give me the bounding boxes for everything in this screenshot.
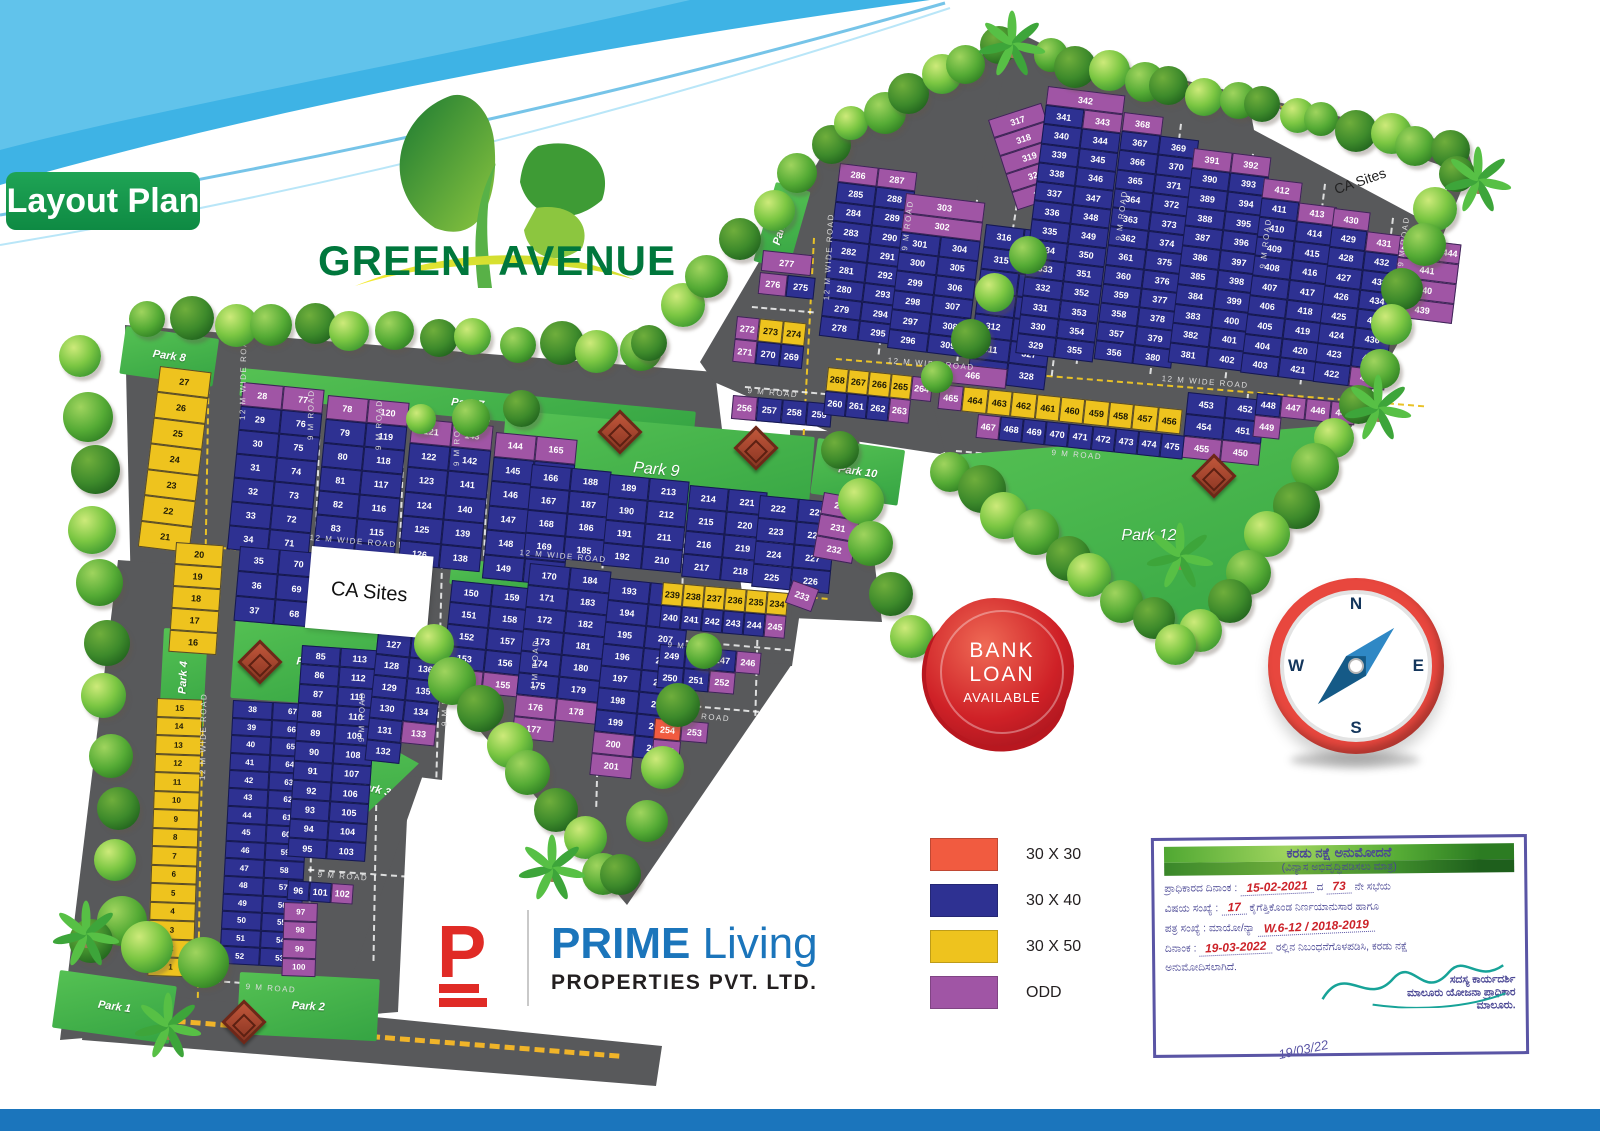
plot-268: 268 [825,367,849,393]
legend-label: 30 X 30 [1026,846,1081,864]
plot-block: 121143122142123141124140125139126138 [398,418,494,572]
compass-icon: N E S W [1268,578,1444,754]
plot-275: 275 [786,275,816,300]
plot-263: 263 [887,398,911,424]
tree-icon [375,311,414,350]
plot-469: 469 [1021,419,1046,445]
plot-272: 272 [735,316,761,341]
plot-row: 97 [283,902,318,922]
tree-icon [975,273,1014,312]
plot-39: 39 [231,718,272,738]
bank-loan-seal: BANK LOAN AVAILABLE [920,588,1080,758]
tree-icon [121,921,173,973]
plot-row: 9 [152,809,199,829]
plot-271: 271 [732,339,758,364]
compass-shadow [1290,752,1420,768]
tree-icon [641,746,684,789]
plot-37: 37 [233,596,275,624]
plot-210: 210 [641,547,683,574]
palm-tree-icon [1458,156,1498,196]
plot-row: 100 [281,957,316,977]
tree-icon [84,620,130,666]
plot-5: 5 [150,883,197,903]
tree-icon [626,800,668,842]
plot-48: 48 [223,876,264,896]
plot-132: 132 [365,739,402,764]
plot-238: 238 [682,584,705,609]
plot-460: 460 [1059,397,1086,424]
plot-457: 457 [1132,404,1159,431]
plot-38: 38 [232,700,273,720]
tree-icon [1395,126,1435,166]
stamp-date-2: 19-03-2022 [1199,938,1273,956]
brand-word-green: GREEN [318,237,472,285]
tree-icon [921,361,953,393]
developer-name-light: Living [690,919,817,968]
tree-icon [505,750,550,795]
legend-item-1: 30 X 40 [930,884,1081,917]
plot-58: 58 [264,860,305,880]
compass-north-label: N [1350,594,1362,614]
tree-icon [719,218,761,260]
plot-row: 14 [156,716,203,736]
plot-row: 15 [156,698,203,718]
plot-240: 240 [659,605,682,630]
plot-36: 36 [236,571,278,599]
plot-242: 242 [701,609,724,634]
tree-icon [848,521,893,566]
page-title: Layout Plan [6,172,200,230]
tree-icon [170,296,214,340]
tree-icon [500,327,536,363]
legend-label: 30 X 50 [1026,938,1081,956]
tree-icon [63,392,113,442]
legend-swatch [930,930,998,963]
plot-95: 95 [287,837,327,859]
stamp-meeting-no: 73 [1326,878,1352,894]
plot-46: 46 [225,841,266,861]
palm-tree-icon [532,844,572,884]
plot-273: 273 [758,318,784,343]
plot-225: 225 [751,564,792,591]
plot-row: 99 [282,939,317,959]
plot-244: 244 [743,612,766,637]
stamp-letter-no: W.6-12 / 2018-2019 [1257,917,1375,937]
plot-276: 276 [758,272,788,297]
plot-96: 96 [287,880,310,901]
legend-item-0: 30 X 30 [930,838,1081,871]
plot-42: 42 [228,770,269,790]
plot-473: 473 [1113,428,1138,454]
tree-icon [1185,78,1223,116]
plot-13: 13 [155,735,202,755]
plot-51: 51 [220,928,261,948]
legend-swatch [930,884,998,917]
plot-274: 274 [781,321,807,346]
plot-11: 11 [154,772,201,792]
ca-sites-box: CA Sites [305,546,434,638]
signature-icon [1317,955,1508,1009]
plot-252: 252 [708,670,736,694]
plot-138: 138 [439,544,482,572]
compass-south-label: S [1350,718,1361,738]
plot-9: 9 [152,809,199,829]
approval-stamp: ಕರಡು ನಕ್ಷೆ ಅನುಮೋದನೆ (ವಿನ್ಯಾಸ ಅಭಿವೃದ್ಧಿಪಡ… [1151,834,1529,1058]
plot-448: 448 [1255,393,1282,417]
plot-178: 178 [555,699,598,725]
tree-icon [686,633,722,669]
stamp-line-4: ದಿನಾಂಕ : 19-03-2022 ರಲ್ಲಿನ ನಿಬಂಧನೆಗೊಳಪಡಿ… [1165,937,1515,956]
plot-size-legend: 30 X 3030 X 4030 X 50ODD [930,838,1081,1022]
plot-262: 262 [866,395,890,421]
tree-icon [250,304,292,346]
plot-41: 41 [229,753,270,773]
plot-474: 474 [1136,431,1161,457]
park-label: Park 1 [97,999,131,1015]
plot-256: 256 [731,395,758,421]
seal-line3: AVAILABLE [963,690,1040,705]
plot-260: 260 [823,391,847,417]
plot-47: 47 [224,858,265,878]
tree-icon [656,683,700,727]
plot-row: 11 [154,772,201,792]
plot-16: 16 [168,630,217,655]
tree-icon [685,255,728,298]
tree-icon [834,106,868,140]
tree-icon [1155,624,1196,665]
layout-plan-poster: Layout Plan GREEN AVENUE Park 1Park 2Par… [0,0,1600,1131]
plot-15: 15 [156,698,203,718]
plot-row: 10 [153,790,200,810]
tree-icon [81,673,126,718]
tree-icon [178,937,229,988]
tree-icon [1149,66,1188,105]
plot-245: 245 [764,614,787,639]
legend-item-3: ODD [930,976,1081,1009]
tree-icon [76,559,123,606]
plot-239: 239 [661,582,684,607]
plot-6: 6 [151,864,198,884]
plot-block: 2019181716 [168,542,224,655]
plot-35: 35 [238,546,280,574]
plot-449: 449 [1252,415,1281,440]
palm-tree-icon [1358,384,1398,424]
plot-102: 102 [330,883,353,904]
plot-464: 464 [962,387,989,414]
plot-241: 241 [680,607,703,632]
plot-block: 189213190212191211192210 [601,474,689,573]
plot-456: 456 [1156,407,1183,434]
plot-470: 470 [1044,421,1069,447]
plot-row: 5 [150,883,197,903]
tree-icon [89,734,133,778]
plot-block: 979899100 [281,902,318,977]
plot-block: 272273274271270269 [732,316,806,369]
plot-235: 235 [745,589,768,614]
road-label: 12 M WIDE ROAD [198,693,209,780]
legend-item-2: 30 X 50 [930,930,1081,963]
plot-row: 13 [155,735,202,755]
tree-icon [838,478,884,524]
plot-14: 14 [156,716,203,736]
tree-icon [1371,304,1412,345]
plot-43: 43 [227,788,268,808]
stamp-subtitle: (ವಿನ್ಯಾಸ ಅಭಿವೃದ್ಧಿಪಡಿಸಲು ಮಾತ್ರ) [1164,859,1514,876]
road-label: 9 M ROAD [357,691,367,742]
plot-40: 40 [230,735,271,755]
plot-472: 472 [1090,426,1115,452]
plot-107: 107 [331,763,371,785]
plot-101: 101 [309,882,332,903]
legend-label: 30 X 40 [1026,892,1081,910]
plot-row: 12 [154,753,201,773]
bottom-accent-bar [0,1109,1600,1131]
plot-99: 99 [282,939,317,959]
tree-icon [575,330,618,373]
plot-row: 98 [283,920,318,940]
developer-logo: P PRIME Living PROPERTIES PVT. LTD. [437,903,818,1013]
tree-icon [94,839,136,881]
plot-12: 12 [154,753,201,773]
plot-266: 266 [868,371,892,397]
plot-50: 50 [221,911,262,931]
road-label: 9 M ROAD [530,639,540,690]
plot-458: 458 [1107,402,1134,429]
tree-icon [452,399,490,437]
developer-name-bold: PRIME [551,919,690,968]
ca-sites-label: CA Sites [330,577,408,607]
plot-45: 45 [226,823,267,843]
plot-row: 6 [151,864,198,884]
tree-icon [1403,223,1446,266]
plot-471: 471 [1067,424,1092,450]
tree-icon [503,390,540,427]
stamp-line-1: ಪ್ರಾಧಿಕಾರದ ದಿನಾಂಕ : 15-02-2021 ದ 73 ನೇ ಸ… [1164,877,1514,896]
tree-icon [71,445,120,494]
plot-467: 467 [975,414,1000,440]
stamp-subject-no: 17 [1221,900,1247,916]
stamp-date-1: 15-02-2021 [1240,878,1314,896]
plot-103: 103 [326,840,366,862]
plot-270: 270 [755,341,781,366]
seal-line2: LOAN [969,663,1034,687]
plot-201: 201 [589,753,633,779]
stamp-line-3: ಪತ್ರ ಸಂಖ್ಯೆ : ಮಾಯೋ/ನ್ಯಾ W.6-12 / 2018-20… [1165,917,1515,936]
plot-328: 328 [1006,363,1047,390]
tree-icon [754,190,795,231]
tree-icon [777,153,817,193]
road-label: 9 M ROAD [306,389,316,440]
brand-logo: GREEN AVENUE [300,78,680,303]
road-label: 9 M ROAD [374,399,384,450]
plot-269: 269 [779,344,805,369]
plot-106: 106 [330,782,370,804]
plot-459: 459 [1083,399,1110,426]
plot-234: 234 [766,591,789,616]
tree-icon [406,404,436,434]
plot-10: 10 [153,790,200,810]
park-label: Park 4 [177,661,191,695]
plot-133: 133 [401,721,437,746]
palm-tree-icon [992,20,1032,60]
stamp-line-2: ವಿಷಯ ಸಂಖ್ಯೆ : 17 ಕೈಗೆತ್ತಿಕೊಂಡ ನಿರ್ಣಯಾನುಸ… [1165,897,1515,916]
plot-261: 261 [844,393,868,419]
palm-tree-icon [1160,532,1200,572]
plot-463: 463 [986,389,1013,416]
plot-258: 258 [781,399,808,425]
prime-monogram-icon: P [437,909,511,1007]
plot-149: 149 [482,554,525,582]
plot-row: 7 [151,846,198,866]
plot-49: 49 [222,893,263,913]
plot-8: 8 [152,827,199,847]
tree-icon [869,572,913,616]
plot-468: 468 [998,416,1023,442]
palm-tree-icon [148,1002,188,1042]
plot-44: 44 [227,805,268,825]
plot-267: 267 [847,369,871,395]
seal-line1: BANK [969,639,1034,663]
plot-236: 236 [724,587,747,612]
tree-icon [821,431,859,469]
plot-475: 475 [1159,433,1184,459]
tree-icon [1244,86,1280,122]
tree-icon [600,854,641,895]
tree-icon [1304,102,1338,136]
park-label: Park 2 [291,1000,325,1014]
plot-217: 217 [681,554,722,581]
plot-257: 257 [756,397,783,423]
plot-462: 462 [1010,392,1037,419]
tree-icon [1009,236,1047,274]
plot-row: 4 [149,901,196,921]
plot-237: 237 [703,586,726,611]
plot-192: 192 [601,543,643,570]
compass-west-label: W [1288,656,1304,676]
tree-icon [129,301,165,337]
tree-icon [59,335,101,377]
plot-block: 166188167187168186169185 [523,464,611,563]
plot-447: 447 [1280,396,1307,420]
plot-7: 7 [151,846,198,866]
tree-icon [68,506,116,554]
plot-row: 8 [152,827,199,847]
tree-icon [631,325,667,361]
plot-243: 243 [722,610,745,635]
brand-word-avenue: AVENUE [498,237,676,285]
legend-swatch [930,976,998,1009]
tree-icon [420,319,458,357]
plot-100: 100 [281,957,316,977]
plot-4: 4 [149,901,196,921]
legend-label: ODD [1026,984,1062,1002]
park-label: Park 8 [152,348,186,364]
plot-265: 265 [889,374,913,400]
palm-tree-icon [66,910,106,950]
legend-swatch [930,838,998,871]
plot-461: 461 [1034,394,1061,421]
compass-east-label: E [1413,656,1424,676]
logo-divider [527,910,529,1006]
plot-98: 98 [283,920,318,940]
tree-icon [97,787,140,830]
developer-subtitle: PROPERTIES PVT. LTD. [551,971,818,995]
plot-row: 16 [168,630,217,655]
plot-450: 450 [1220,440,1261,466]
plot-246: 246 [734,651,761,675]
plot-97: 97 [283,902,318,922]
